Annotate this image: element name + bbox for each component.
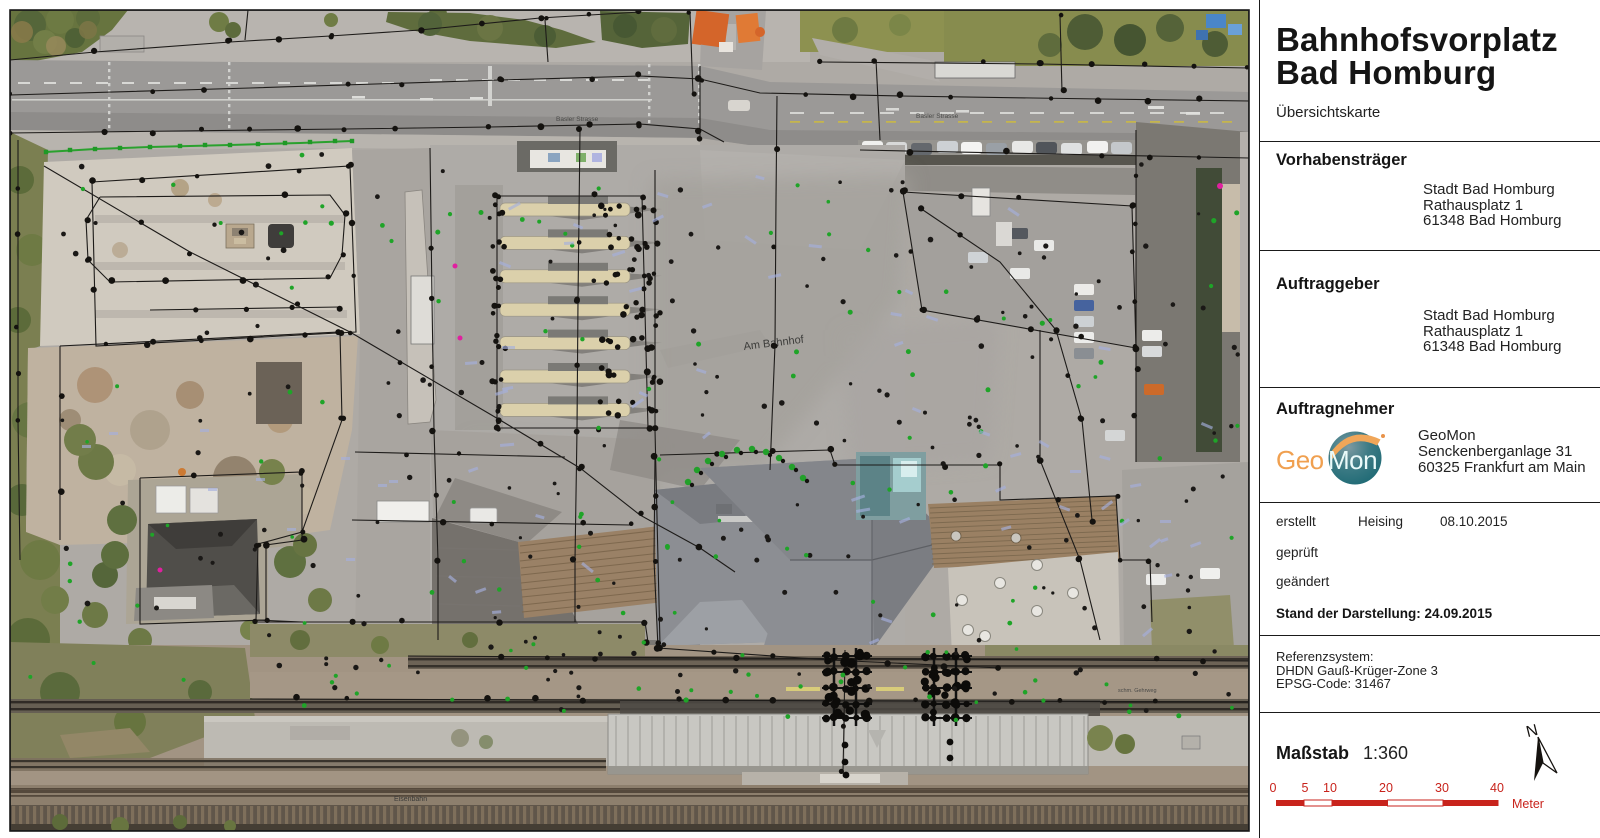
svg-text:Basler Strasse: Basler Strasse: [556, 116, 599, 123]
svg-text:5: 5: [1302, 781, 1309, 795]
svg-text:30: 30: [1435, 781, 1449, 795]
svg-text:Basler Strasse: Basler Strasse: [916, 113, 959, 120]
svg-text:0: 0: [1270, 781, 1277, 795]
svg-text:Eisenbahn: Eisenbahn: [394, 796, 427, 803]
svg-text:Geo: Geo: [1276, 445, 1324, 475]
svg-text:Meter: Meter: [1512, 797, 1544, 811]
svg-text:schm. Gehrweg: schm. Gehrweg: [1118, 688, 1157, 694]
svg-text:10: 10: [1323, 781, 1337, 795]
svg-text:40: 40: [1490, 781, 1504, 795]
svg-text:Mon: Mon: [1328, 445, 1377, 475]
svg-text:N: N: [1524, 722, 1539, 741]
svg-text:20: 20: [1379, 781, 1393, 795]
